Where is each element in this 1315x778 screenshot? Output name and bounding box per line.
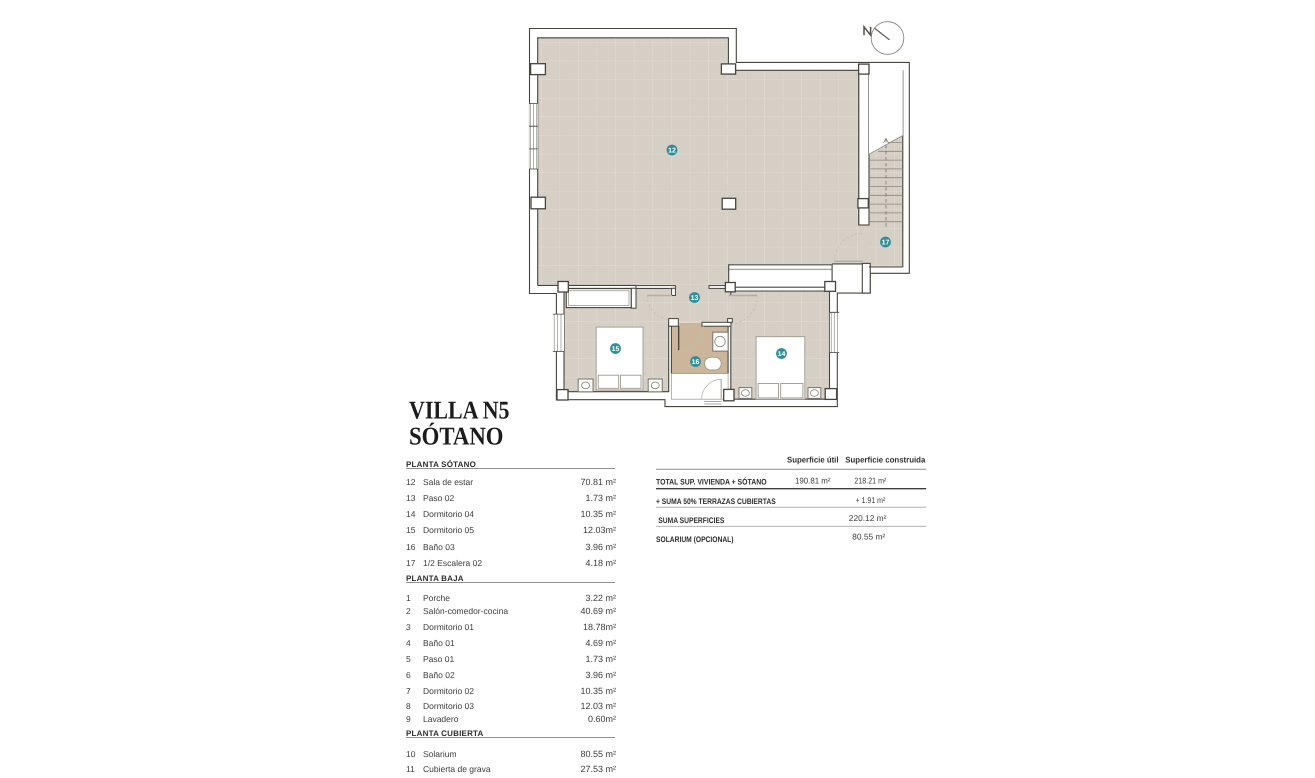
svg-text:TOTAL SUP. VIVIENDA + SÓTANO: TOTAL SUP. VIVIENDA + SÓTANO [656,477,767,487]
svg-text:220.12 m²: 220.12 m² [849,513,887,523]
svg-text:Superficie útil: Superficie útil [787,455,839,464]
svg-text:+ 1.91 m²: + 1.91 m² [856,495,886,505]
svg-text:80.55 m²: 80.55 m² [852,531,885,541]
svg-text:+ SUMA 50% TERRAZAS CUBIERTAS: + SUMA 50% TERRAZAS CUBIERTAS [656,497,776,506]
svg-text:Superficie construida: Superficie construida [845,455,925,464]
svg-text:SUMA SUPERFICIES: SUMA SUPERFICIES [658,516,725,525]
svg-text:SOLARIUM (OPCIONAL): SOLARIUM (OPCIONAL) [656,535,734,544]
svg-text:190.81 m²: 190.81 m² [795,476,831,486]
svg-text:218.21 m²: 218.21 m² [854,476,886,486]
